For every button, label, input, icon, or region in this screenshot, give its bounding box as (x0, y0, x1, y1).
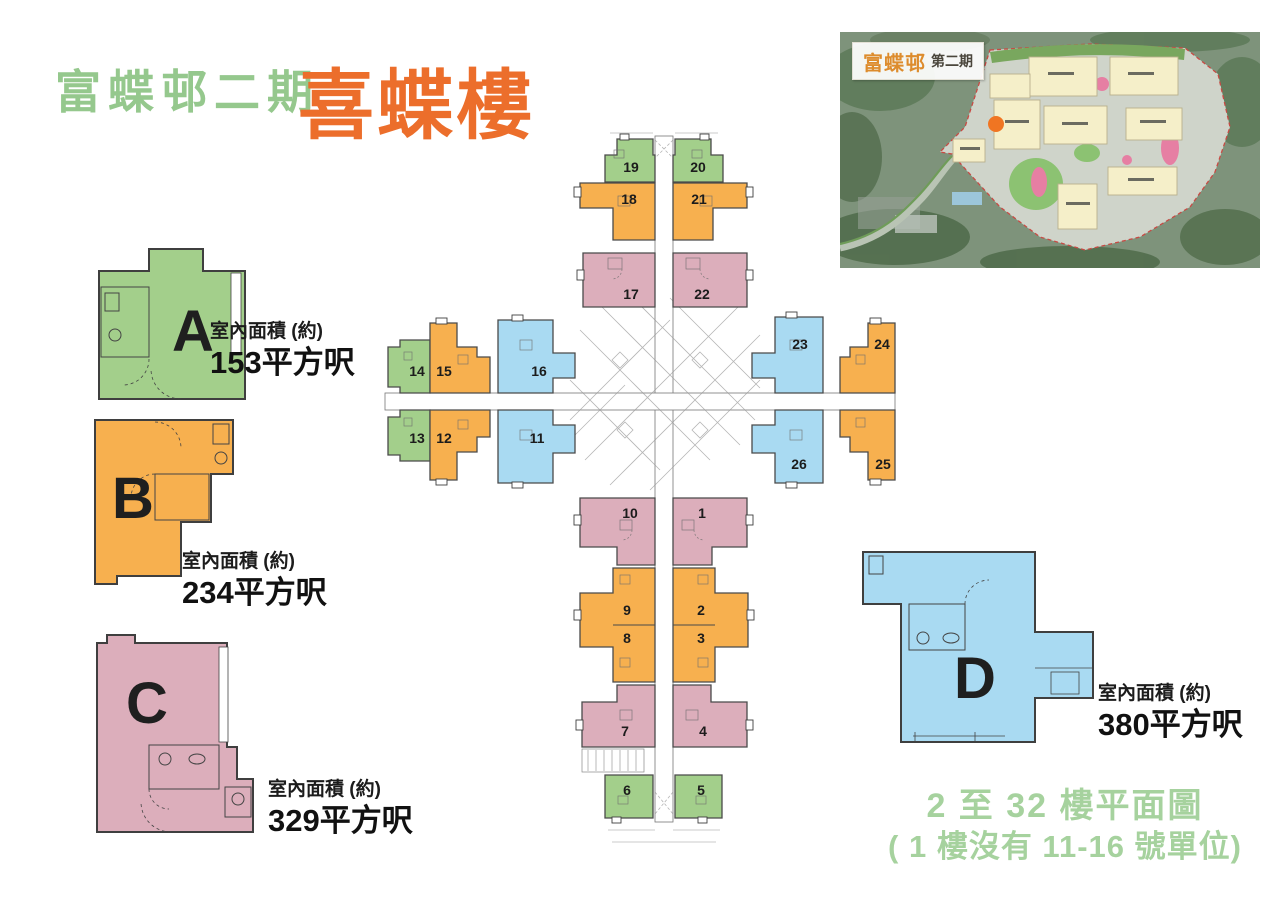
unit-5-label: 5 (697, 782, 705, 798)
site-map-phase: 第二期 (931, 51, 973, 71)
unit-11-footprint (498, 410, 575, 483)
unit-15-footprint (430, 323, 490, 393)
unit-d-letter: D (954, 646, 996, 711)
unit-c-footprint (97, 635, 253, 832)
unit-4-label: 4 (699, 723, 707, 739)
floor-range-note: 2 至 32 樓平面圖 ( 1 樓沒有 11-16 號單位) (850, 785, 1280, 866)
unit-6-label: 6 (623, 782, 631, 798)
floor-range-line1: 2 至 32 樓平面圖 (850, 785, 1280, 828)
unit-16-label: 16 (531, 363, 547, 379)
unit-24-label: 24 (874, 336, 890, 352)
unit-20-label: 20 (690, 159, 706, 175)
unit-7-label: 7 (621, 723, 629, 739)
floor-range-line2: ( 1 樓沒有 11-16 號單位) (850, 828, 1280, 867)
unit-21-footprint (673, 183, 747, 240)
unit-1-label: 1 (698, 505, 706, 521)
unit-d-area-value: 380平方呎 (1098, 708, 1243, 742)
unit-11-label: 11 (530, 430, 545, 446)
lawn (1074, 144, 1100, 162)
unit-24-footprint (840, 323, 895, 393)
unit-a-area-value: 153平方呎 (210, 346, 355, 380)
unit-21-label: 21 (691, 191, 707, 207)
unit-8-label: 8 (623, 630, 631, 646)
unit-17-footprint (583, 253, 655, 307)
unit-26-footprint (752, 410, 823, 483)
unit-23-footprint (752, 317, 823, 393)
floorplan-poster: 富蝶邨二期 喜蝶樓 (0, 0, 1280, 905)
unit-a-caption: 室內面積 (約) 153平方呎 (210, 322, 355, 380)
unit-b-area-value: 234平方呎 (182, 576, 327, 610)
unit-b-caption: 室內面積 (約) 234平方呎 (182, 552, 327, 610)
unit-18-label: 18 (621, 191, 637, 207)
unit-2-label: 2 (697, 602, 705, 618)
unit-type-c-plan: C (85, 627, 265, 859)
unit-7-footprint (582, 685, 655, 747)
estate-title: 富蝶邨二期 (55, 56, 320, 122)
unit-a-letter: A (172, 299, 214, 364)
unit-footprints (388, 139, 895, 818)
unit-b-area-label: 室內面積 (約) (182, 552, 327, 573)
unit-22-footprint (673, 253, 747, 307)
unit-16-footprint (498, 320, 575, 393)
unit-10-footprint (580, 498, 655, 565)
subject-building-marker (988, 116, 1004, 132)
unit-4-footprint (673, 685, 747, 747)
unit-12-label: 12 (436, 430, 452, 446)
unit-d-area-label: 室內面積 (約) (1098, 684, 1243, 705)
typical-floor-plan: 19 20 18 21 17 22 14 15 16 13 12 11 23 2… (370, 130, 920, 870)
unit-13-label: 13 (409, 430, 425, 446)
unit-b-letter: B (112, 466, 154, 531)
existing-pool (952, 192, 982, 205)
unit-18-footprint (580, 183, 655, 240)
unit-15-label: 15 (436, 363, 452, 379)
unit-c-letter: C (126, 671, 168, 736)
unit-10-label: 10 (622, 505, 638, 521)
unit-26-label: 26 (791, 456, 807, 472)
unit-1-footprint (673, 498, 747, 565)
site-map-label-box: 富蝶邨 第二期 (852, 42, 984, 80)
unit-22-label: 22 (694, 286, 710, 302)
unit-9-label: 9 (623, 602, 631, 618)
unit-19-label: 19 (623, 159, 639, 175)
unit-3-label: 3 (697, 630, 705, 646)
unit-23-label: 23 (792, 336, 808, 352)
playground (1122, 155, 1132, 165)
unit-17-label: 17 (623, 286, 639, 302)
playground (1031, 167, 1047, 197)
unit-d-caption: 室內面積 (約) 380平方呎 (1098, 684, 1243, 742)
unit-25-label: 25 (875, 456, 891, 472)
site-map-estate-name: 富蝶邨 (863, 47, 926, 76)
unit-a-area-label: 室內面積 (約) (210, 322, 355, 343)
unit-14-label: 14 (409, 363, 425, 379)
